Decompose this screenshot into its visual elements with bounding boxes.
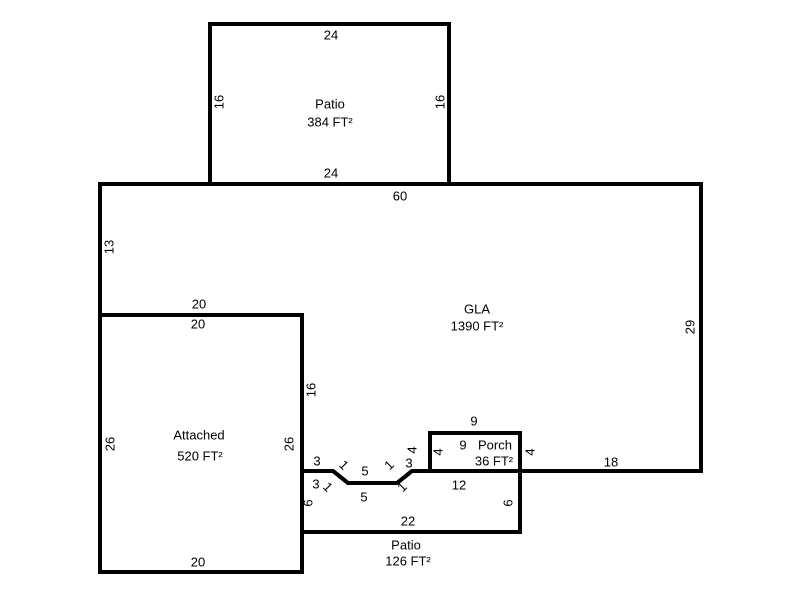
gla-porch-right-height-label: 4 [524,448,537,455]
gla-porch-left-height-label: 4 [406,446,419,453]
attached-area-label: 520 FT² [177,450,223,463]
gla-jog-seg1-label: 3 [313,455,320,468]
gla-jog-seg2-label: 5 [361,465,368,478]
attached-name-label: Attached [173,429,224,442]
patio-bottom-top-right-width-label: 12 [452,479,466,492]
patio-top-name-label: Patio [315,98,345,111]
attached-bottom-width-label: 20 [191,556,205,569]
patio-bottom-left-height-label: 6 [302,499,315,506]
gla-top-width-label: 60 [393,190,407,203]
porch-area-label: 36 FT² [475,455,513,468]
gla-jog-seg3-label: 3 [405,457,412,470]
attached-top-width-label: 20 [191,318,205,331]
gla-step-width-label: 20 [192,298,206,311]
attached-outline [100,315,302,572]
sketch-outlines [0,0,800,600]
patio-top-height-right-label: 16 [434,95,447,109]
porch-top-width-label: 9 [459,439,466,452]
gla-left-height-label: 13 [103,240,116,254]
attached-left-height-label: 26 [104,437,117,451]
gla-name-label: GLA [464,303,490,316]
patio-top-height-left-label: 16 [213,95,226,109]
porch-left-height-label: 4 [432,448,445,455]
gla-area-label: 1390 FT² [451,320,504,333]
gla-porch-top-width-label: 9 [470,415,477,428]
gla-left-lower-height-label: 16 [305,383,318,397]
patio-bottom-width-label: 22 [401,515,415,528]
patio-top-width-top-label: 24 [324,29,338,42]
gla-bottom-right-width-label: 18 [604,456,618,469]
attached-right-height-label: 26 [283,437,296,451]
patio-bottom-area-label: 126 FT² [385,555,431,568]
patio-top-width-bottom-label: 24 [324,167,338,180]
porch-name-label: Porch [478,439,512,452]
gla-right-height-label: 29 [684,320,697,334]
patio-bottom-name-label: Patio [391,539,421,552]
patio-bottom-jog-seg1-label: 3 [312,478,319,491]
patio-bottom-jog-seg2-label: 5 [360,491,367,504]
floor-plan-sketch: 2416Patio384 FT²162460132016GLA1390 FT²2… [0,0,800,600]
patio-bottom-right-height-label: 6 [502,499,515,506]
patio-top-area-label: 384 FT² [307,116,353,129]
